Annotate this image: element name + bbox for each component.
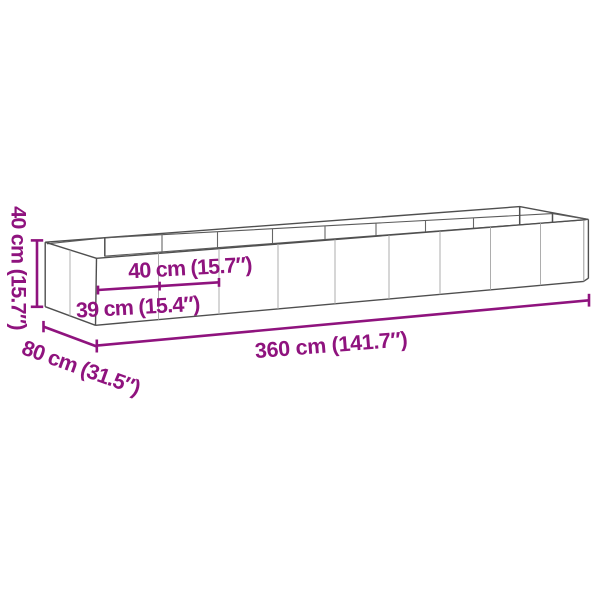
svg-text:40 cm (15.7″): 40 cm (15.7″) [6,206,30,330]
